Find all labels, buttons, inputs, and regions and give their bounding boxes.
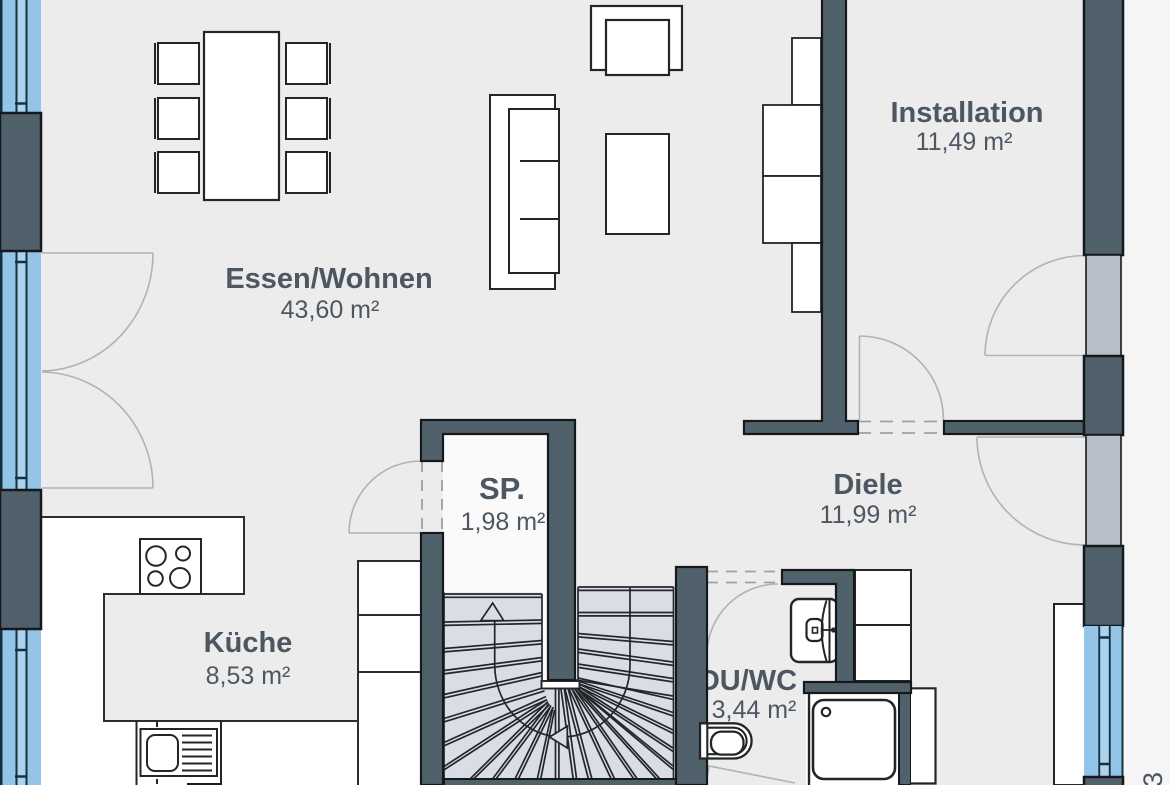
svg-text:Installation: Installation [890, 97, 1043, 129]
svg-text:11,49 m²: 11,49 m² [916, 128, 1013, 156]
svg-text:43,60 m²: 43,60 m² [281, 296, 380, 324]
svg-text:Essen/Wohnen: Essen/Wohnen [225, 263, 432, 295]
svg-text:DU/WC: DU/WC [699, 665, 797, 697]
svg-text:SP.: SP. [479, 471, 525, 506]
svg-text:1,98 m²: 1,98 m² [461, 508, 546, 536]
svg-text:3,44 m²: 3,44 m² [712, 696, 797, 724]
svg-text:8,53 m²: 8,53 m² [206, 662, 291, 690]
svg-text:3: 3 [1138, 772, 1168, 785]
svg-text:Diele: Diele [833, 469, 902, 501]
svg-text:11,99 m²: 11,99 m² [820, 501, 917, 529]
svg-text:Küche: Küche [204, 627, 293, 659]
